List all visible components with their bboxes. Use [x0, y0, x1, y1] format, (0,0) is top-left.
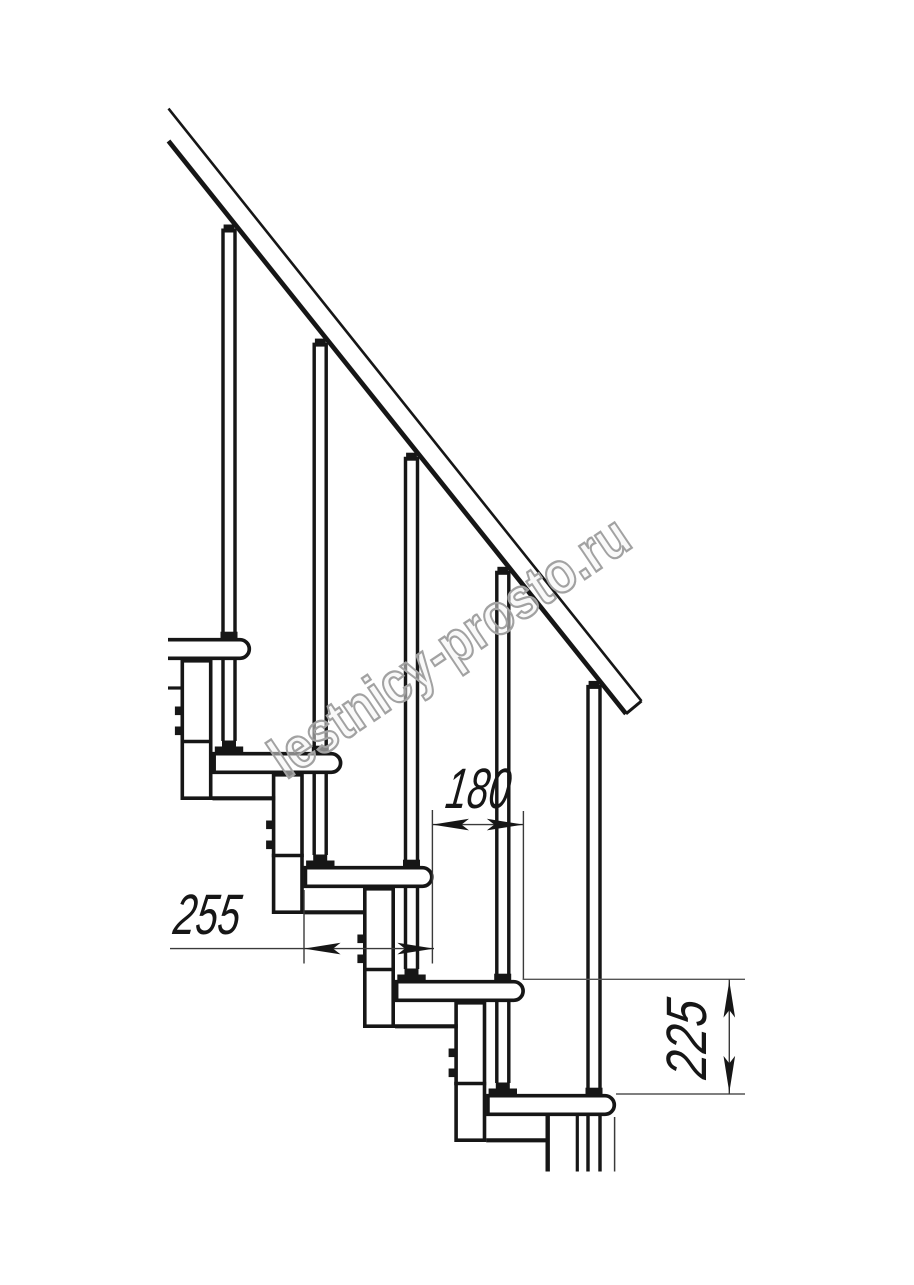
svg-text:180: 180: [442, 757, 515, 821]
svg-text:225: 225: [655, 995, 719, 1083]
svg-text:255: 255: [169, 883, 245, 947]
